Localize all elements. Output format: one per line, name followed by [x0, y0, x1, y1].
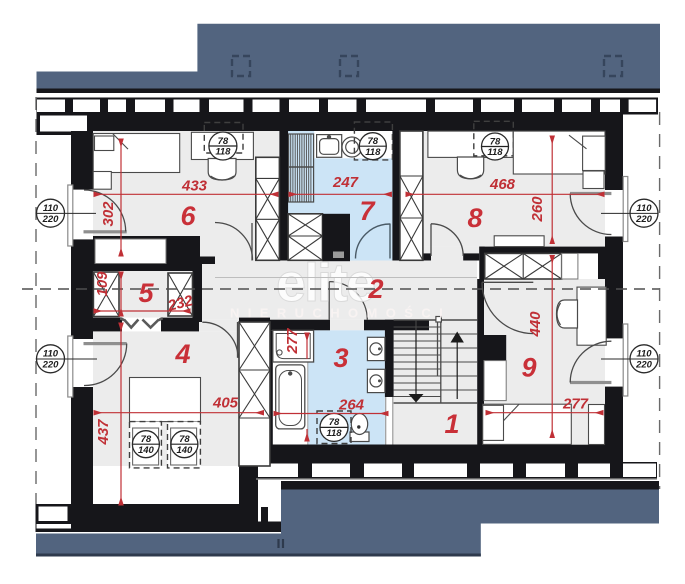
svg-text:433: 433 [181, 178, 208, 195]
svg-text:1: 1 [444, 409, 459, 439]
svg-text:4: 4 [174, 339, 190, 369]
svg-text:7: 7 [359, 196, 376, 226]
svg-text:118: 118 [365, 147, 381, 158]
svg-text:264: 264 [338, 397, 365, 414]
svg-text:302: 302 [100, 201, 117, 227]
svg-text:140: 140 [138, 445, 155, 456]
svg-text:78: 78 [179, 434, 190, 445]
svg-text:277: 277 [284, 328, 301, 355]
svg-text:110: 110 [43, 203, 59, 214]
svg-text:2: 2 [367, 274, 383, 304]
svg-text:440: 440 [527, 311, 544, 338]
svg-text:78: 78 [329, 417, 340, 428]
svg-text:9: 9 [521, 353, 536, 383]
svg-text:6: 6 [180, 201, 196, 231]
svg-text:78: 78 [141, 434, 152, 445]
svg-text:110: 110 [43, 349, 59, 360]
svg-text:109: 109 [94, 271, 111, 297]
svg-text:140: 140 [176, 445, 193, 456]
svg-text:220: 220 [635, 214, 653, 225]
svg-text:78: 78 [490, 136, 501, 147]
svg-text:220: 220 [635, 359, 653, 370]
svg-text:220: 220 [42, 359, 60, 370]
svg-text:118: 118 [487, 147, 503, 158]
svg-text:277: 277 [562, 396, 589, 413]
svg-text:437: 437 [95, 419, 112, 446]
svg-text:118: 118 [326, 428, 342, 439]
svg-text:405: 405 [212, 395, 239, 412]
svg-text:3: 3 [333, 343, 348, 373]
svg-text:468: 468 [489, 176, 516, 193]
svg-text:NIERUCHOMOŚCI: NIERUCHOMOŚCI [230, 306, 451, 321]
svg-text:260: 260 [529, 196, 546, 223]
svg-text:110: 110 [636, 203, 652, 214]
svg-text:78: 78 [218, 136, 229, 147]
svg-text:8: 8 [467, 203, 482, 233]
svg-text:118: 118 [215, 147, 231, 158]
svg-text:220: 220 [42, 214, 60, 225]
svg-text:elite: elite [276, 253, 375, 313]
svg-text:247: 247 [332, 174, 359, 191]
svg-text:78: 78 [368, 136, 379, 147]
svg-text:5: 5 [138, 278, 154, 308]
svg-text:110: 110 [636, 349, 652, 360]
